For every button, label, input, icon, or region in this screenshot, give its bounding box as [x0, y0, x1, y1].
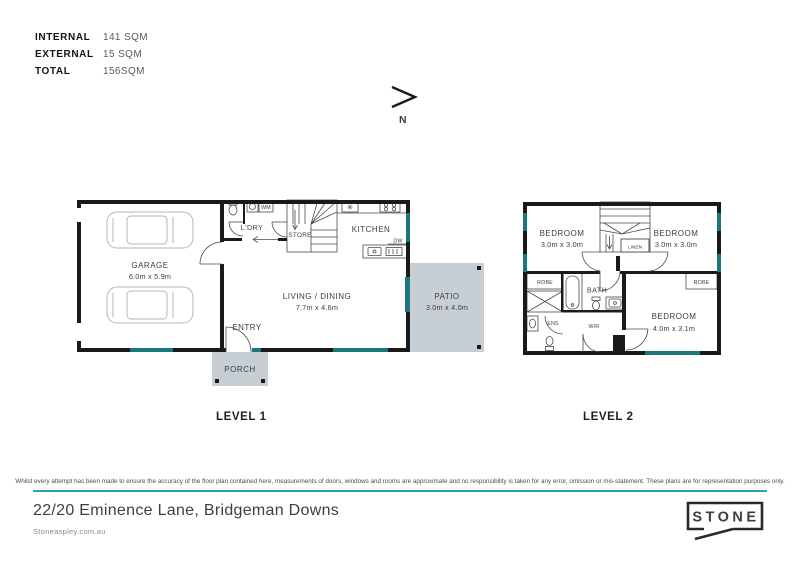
store-label: STORE	[288, 232, 311, 239]
bedroom-main-dims: 4.0m x 3.1m	[653, 324, 695, 333]
level2-title: LEVEL 2	[583, 411, 634, 423]
robe-left-label: ROBE	[537, 280, 553, 286]
car-icon	[107, 212, 193, 248]
area-value: 156SQM	[103, 67, 145, 77]
entry-label: ENTRY	[232, 323, 262, 332]
logo-tail	[695, 529, 733, 539]
area-value: 15 SQM	[103, 50, 142, 60]
area-summary: INTERNAL 141 SQM EXTERNAL 15 SQM TOTAL 1…	[35, 33, 148, 84]
island-bench	[363, 244, 407, 258]
north-arrow-icon: N	[388, 84, 428, 129]
stone-logo: STONE	[686, 501, 764, 545]
car-icon	[107, 287, 193, 323]
dishwasher-icon	[386, 248, 402, 256]
bedroom-left-dims: 3.0m x 3.0m	[541, 240, 583, 249]
bath-label: BATH	[587, 286, 607, 295]
dw-label: DW	[393, 239, 402, 245]
north-letter: N	[399, 114, 407, 126]
linen-label: LINEN	[628, 245, 643, 251]
bedroom-right-dims: 3.0m x 3.0m	[655, 240, 697, 249]
patio-dims: 3.0m x 4.0m	[426, 303, 468, 312]
ens-toilet-icon	[546, 337, 553, 346]
sliding-door	[405, 277, 410, 312]
garage-label: GARAGE	[131, 261, 168, 270]
toilet-icon	[593, 301, 600, 310]
floorplan-page: INTERNAL 141 SQM EXTERNAL 15 SQM TOTAL 1…	[0, 0, 800, 565]
ens-label: ENS	[547, 321, 559, 327]
area-row-total: TOTAL 156SQM	[35, 67, 148, 77]
website-url: Stoneaspley.com.au	[33, 527, 106, 536]
divider-rule	[33, 490, 767, 492]
door-arcs	[200, 222, 287, 352]
ens-vanity-icon	[527, 316, 538, 331]
area-value: 141 SQM	[103, 33, 148, 43]
kitchen-label: KITCHEN	[352, 225, 391, 234]
logo-text: STONE	[692, 510, 759, 526]
area-label: INTERNAL	[35, 33, 103, 43]
toilet-icon	[229, 205, 237, 215]
area-label: TOTAL	[35, 67, 103, 77]
toilet-tank	[592, 297, 600, 301]
level1-plan: ✳	[70, 190, 500, 395]
living-label: LIVING / DINING	[283, 292, 351, 301]
north-chevron	[392, 87, 415, 107]
patio-label: PATIO	[434, 292, 459, 301]
area-label: EXTERNAL	[35, 50, 103, 60]
bedroom-right-label: BEDROOM	[654, 229, 699, 238]
robe-right-label: ROBE	[694, 280, 710, 286]
area-row-external: EXTERNAL 15 SQM	[35, 50, 148, 60]
property-address: 22/20 Eminence Lane, Bridgeman Downs	[33, 502, 339, 520]
area-row-internal: INTERNAL 141 SQM	[35, 33, 148, 43]
appliance-glyph: ✳	[347, 203, 354, 212]
porch-label: PORCH	[224, 365, 255, 374]
bedroom-main-label: BEDROOM	[652, 312, 697, 321]
sink-icon	[368, 248, 381, 256]
garage-dims: 6.0m x 5.9m	[129, 272, 171, 281]
laundry-label: L'DRY	[241, 223, 263, 232]
living-dims: 7.7m x 4.6m	[296, 303, 338, 312]
stairs-level1	[287, 200, 337, 252]
wm-label: WM	[261, 205, 271, 211]
wir-label: WIR	[589, 324, 600, 330]
level1-title: LEVEL 1	[216, 411, 267, 423]
bedroom-left-label: BEDROOM	[540, 229, 585, 238]
disclaimer-text: Whilst every attempt has been made to en…	[0, 478, 800, 485]
level2-plan: BEDROOM 3.0m x 3.0m BEDROOM 3.0m x 3.0m …	[515, 195, 730, 365]
